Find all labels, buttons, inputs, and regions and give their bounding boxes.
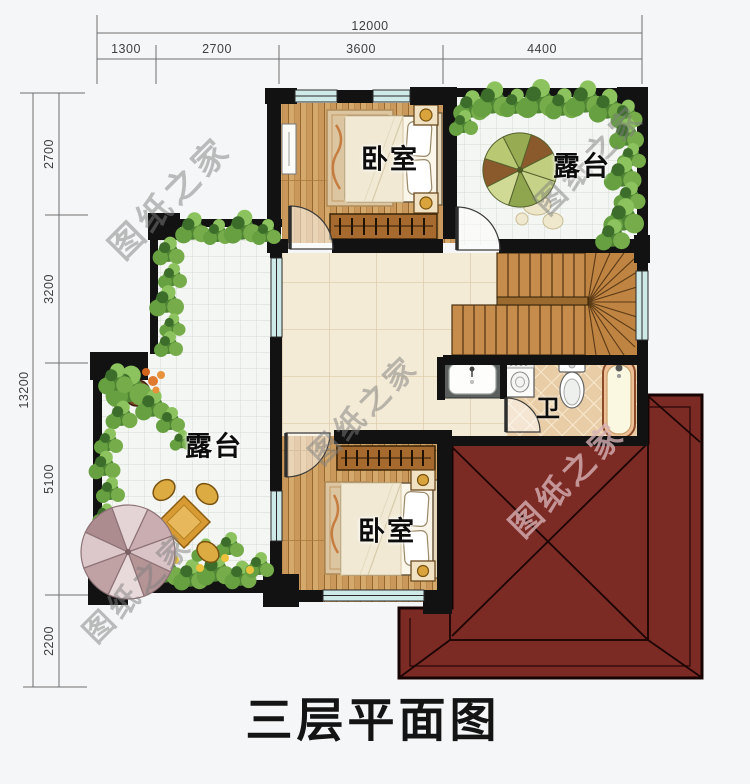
window-hall-left (271, 258, 282, 337)
label-bedroom-top: 卧室 (361, 138, 419, 177)
window-bedroom-bottom (323, 590, 424, 601)
label-bathroom: 卫 (536, 389, 560, 424)
dim-top-total: 12000 (351, 19, 388, 33)
label-terrace-left: 露台 (185, 425, 243, 464)
stair-handrail (497, 297, 588, 305)
toilet (559, 359, 585, 408)
washing-machine (506, 360, 534, 397)
window-stairs-right (636, 271, 648, 340)
dim-top-seg-2: 2700 (202, 42, 232, 56)
dim-left-seg-4: 2200 (42, 626, 56, 656)
vanity-sink (443, 360, 502, 398)
page-title: 三层平面图 (246, 682, 501, 751)
label-bedroom-bottom: 卧室 (358, 510, 416, 549)
dim-top-seg-1: 1300 (111, 42, 141, 56)
label-terrace-right: 露台 (553, 145, 611, 184)
dim-left-total: 13200 (17, 371, 31, 408)
dim-left-seg-3: 5100 (42, 464, 56, 494)
dim-left-seg-1: 2700 (42, 139, 56, 169)
window-bedroom-bottom-left (271, 491, 282, 541)
dim-top-seg-3: 3600 (346, 42, 376, 56)
floor-plan-page: 图纸之家 图纸之家 图纸之家 图纸之家 图纸之家 12000 1300 2700… (0, 0, 750, 784)
wardrobe-top (330, 214, 437, 239)
wardrobe-bottom (337, 446, 435, 470)
window-bedroom-top-2 (373, 90, 410, 102)
window-bedroom-top-1 (295, 90, 337, 102)
dim-top-seg-4: 4400 (527, 42, 557, 56)
dim-left-seg-2: 3200 (42, 274, 56, 304)
